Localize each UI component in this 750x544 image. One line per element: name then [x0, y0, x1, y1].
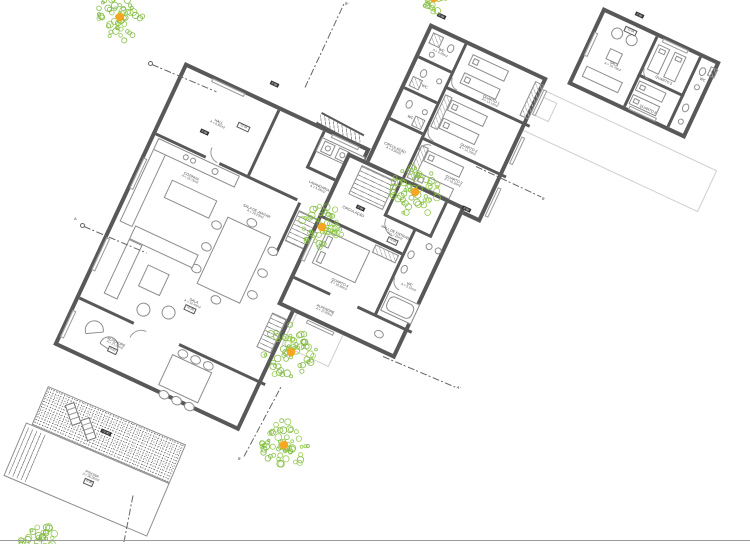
section-letter-b-end: B'	[344, 1, 349, 7]
shower	[707, 66, 718, 78]
room-label-sala: SALA A = 15.75m2	[603, 58, 623, 73]
pillow	[442, 121, 450, 129]
pillow	[674, 56, 682, 63]
armchair	[159, 303, 178, 322]
kitchen-island	[164, 180, 218, 219]
room-label-circulacao: CIRCULAÇÃO A = 8.90m2	[382, 141, 407, 158]
chair	[246, 288, 260, 301]
chair	[256, 267, 270, 280]
pillow	[472, 58, 480, 66]
washbasin	[693, 83, 701, 91]
room-label-hall: HALL A = 9.60m2	[209, 117, 227, 131]
pillow	[451, 103, 459, 111]
window	[584, 32, 599, 57]
tree-canopy	[411, 0, 457, 21]
floor-plan-canvas: HALL A = 9.60m2 LAVANDARIA A = 6.45m2 CO…	[0, 0, 750, 544]
tree	[249, 410, 319, 480]
window	[509, 136, 525, 165]
tree-canopy	[380, 157, 450, 227]
section-marker	[148, 61, 153, 66]
level-tag: 0.00	[270, 80, 280, 88]
window	[91, 237, 110, 271]
bathtub-basin	[384, 294, 416, 320]
section-marker	[80, 223, 85, 228]
tree	[86, 0, 154, 51]
planter	[373, 328, 385, 339]
section-letter-a-end: A'	[456, 385, 461, 391]
pool-steps	[8, 428, 46, 483]
section-line	[305, 3, 345, 88]
toilet	[418, 68, 428, 79]
window	[484, 187, 501, 218]
tree	[380, 157, 450, 227]
level-tag: 0.00	[635, 11, 645, 19]
room-label-lavandaria: LAVANDARIA A = 6.45m2	[306, 180, 330, 197]
tree-trunk-dot	[411, 188, 420, 197]
washbasin	[677, 118, 685, 126]
room-label-alpendre: ALPENDRE A = 21.35m2 0.00	[102, 336, 125, 357]
tree-trunk-dot	[318, 223, 327, 232]
washbasin	[435, 77, 443, 85]
tree-trunk-dot	[280, 441, 289, 450]
room-label-wc: WC	[421, 83, 428, 89]
toilet	[406, 249, 416, 260]
tree	[411, 0, 457, 21]
room-label-wc: WC A = 5.10m2	[400, 279, 418, 293]
section-letter-a: A	[74, 216, 77, 221]
washbasin	[424, 242, 433, 251]
section-letter-b2: B	[237, 456, 242, 462]
section-line	[383, 356, 456, 388]
pool-label: PISCINA A = 36.00m2 -0.40	[79, 469, 101, 489]
room-label-sala: SALA A = 32.40m2 +0.05	[181, 295, 203, 315]
dining-table	[196, 217, 271, 304]
toilet	[681, 102, 691, 113]
pillow	[632, 98, 640, 105]
pillow	[639, 84, 647, 91]
room-label-wc: WC	[699, 77, 706, 83]
toilet	[697, 66, 707, 77]
window	[211, 78, 245, 97]
tree-canopy	[249, 410, 319, 480]
room-name: WC	[699, 77, 706, 83]
wall	[247, 110, 280, 177]
coffee-table	[138, 264, 170, 296]
armchair	[134, 300, 153, 319]
page-edge-line	[0, 540, 750, 541]
tree-canopy	[253, 314, 329, 390]
section-letter-b: B	[541, 196, 546, 202]
tree	[290, 195, 354, 259]
pillow	[463, 76, 471, 84]
sun-lounger	[80, 417, 97, 441]
tree-trunk-dot	[116, 13, 125, 22]
window	[60, 310, 76, 339]
bidet	[399, 264, 409, 275]
washbasin	[421, 108, 429, 116]
wall-porch	[79, 297, 135, 325]
tree-trunk-dot	[287, 348, 296, 357]
washbasin	[434, 246, 443, 255]
tree-canopy	[86, 0, 154, 51]
sun-lounger	[65, 402, 82, 426]
door-arc	[129, 326, 146, 343]
tree-canopy	[290, 195, 354, 259]
armchair	[609, 25, 625, 41]
toilet	[404, 99, 414, 110]
room-name: WC	[421, 83, 428, 89]
wall-porch	[293, 276, 331, 296]
tree	[253, 314, 329, 390]
pillow	[658, 48, 666, 55]
lounge-chair	[84, 320, 104, 335]
room-label-cozinha: COZINHA A = 18.75m2	[181, 171, 201, 186]
